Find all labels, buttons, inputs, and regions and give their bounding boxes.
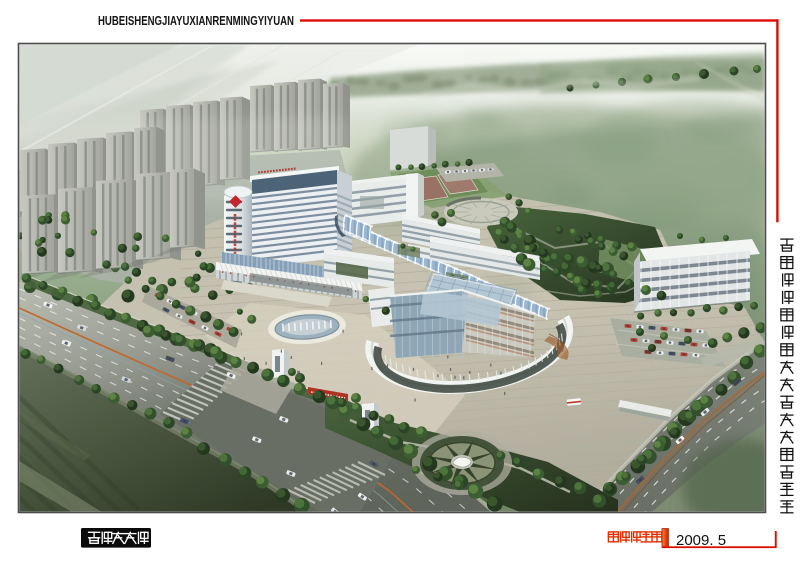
svg-text:HUBEISHENGJIAYUXIANRENMINGYIYU: HUBEISHENGJIAYUXIANRENMINGYIYUAN: [98, 14, 294, 28]
